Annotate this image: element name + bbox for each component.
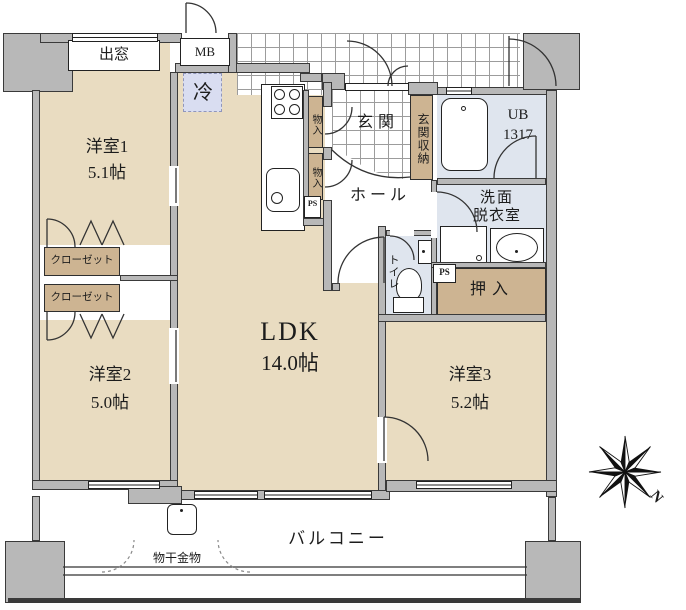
wall <box>323 200 332 291</box>
window <box>72 33 158 42</box>
label-yoshitsu1-size: 5.1帖 <box>65 162 149 183</box>
label-ub-line2: 1317 <box>492 126 544 145</box>
label-ldk-size: 14.0帖 <box>238 350 342 376</box>
label-north: N <box>642 484 669 511</box>
stove-burner <box>274 104 285 115</box>
label-refrigerator: 冷 <box>184 81 222 106</box>
front-door-panel <box>345 83 409 91</box>
door-opening <box>169 166 179 206</box>
label-yoshitsu2-name: 洋室2 <box>68 364 152 385</box>
stove-burner <box>289 104 300 115</box>
stove-burner <box>289 89 300 100</box>
label-yoshitsu3-name: 洋室3 <box>428 364 512 385</box>
balcony-pillar <box>525 541 581 603</box>
label-mb: MB <box>180 44 230 60</box>
wall <box>323 147 332 160</box>
wall <box>32 496 40 541</box>
toilet-cabinet-knob <box>422 250 425 253</box>
label-balcony: バルコニー <box>278 528 398 549</box>
vanity-drain <box>515 250 518 253</box>
wall <box>332 283 340 291</box>
label-monohoshi: 物干金物 <box>144 551 210 566</box>
label-washroom-line1: 洗面 <box>452 189 542 208</box>
window <box>88 481 160 489</box>
label-monoire1: 物入 <box>309 103 323 147</box>
window <box>194 491 258 499</box>
label-ub-line1: UB <box>492 106 544 125</box>
label-ps2: PS <box>433 267 456 278</box>
door-opening <box>431 192 437 238</box>
wall <box>120 275 178 281</box>
floor-plan: 出窓 MB 冷 物入 物入 玄関 玄関収納 UB 1317 ホール 洗面 脱衣室… <box>0 0 686 610</box>
stove-burner <box>274 89 285 100</box>
balcony-pillar <box>5 541 65 603</box>
label-hall: ホール <box>338 186 422 206</box>
wall <box>323 82 332 107</box>
label-closet2: クローゼット <box>45 291 119 304</box>
label-closet1: クローゼット <box>45 254 119 267</box>
label-genkan-shuno: 玄関収納 <box>412 100 432 178</box>
label-demado: 出窓 <box>78 46 150 65</box>
label-yoshitsu2-size: 5.0帖 <box>68 392 152 413</box>
door-opening <box>169 328 179 384</box>
label-monoire2: 物入 <box>309 158 323 198</box>
label-yoshitsu1-name: 洋室1 <box>65 136 149 157</box>
washer-pan-drain <box>476 255 482 261</box>
wall <box>300 73 322 82</box>
wall <box>408 82 438 95</box>
label-yoshitsu3-size: 5.2帖 <box>428 392 512 413</box>
wall <box>32 90 40 486</box>
kitchen-sink <box>266 168 300 212</box>
wall <box>303 218 325 226</box>
window <box>264 491 372 499</box>
door-opening <box>377 417 387 463</box>
vanity-basin <box>496 233 538 262</box>
slop-sink-drain <box>180 509 183 512</box>
window <box>446 87 472 95</box>
wall <box>523 33 580 90</box>
wall <box>437 178 546 185</box>
window <box>416 481 512 489</box>
bathtub-drain <box>461 106 466 111</box>
label-ldk-name: LDK <box>238 316 342 349</box>
wall <box>546 90 557 497</box>
door-opening <box>390 230 414 236</box>
label-ps1: PS <box>304 199 321 209</box>
wall <box>378 314 546 322</box>
label-genkan: 玄関 <box>348 113 408 133</box>
label-toilet: トイレ <box>387 242 401 302</box>
label-washroom-line2: 脱衣室 <box>452 207 542 226</box>
wall <box>548 497 556 541</box>
label-oshiire: 押入 <box>447 280 537 300</box>
balcony-outer-edge <box>8 598 580 603</box>
kitchen-faucet <box>271 192 283 204</box>
